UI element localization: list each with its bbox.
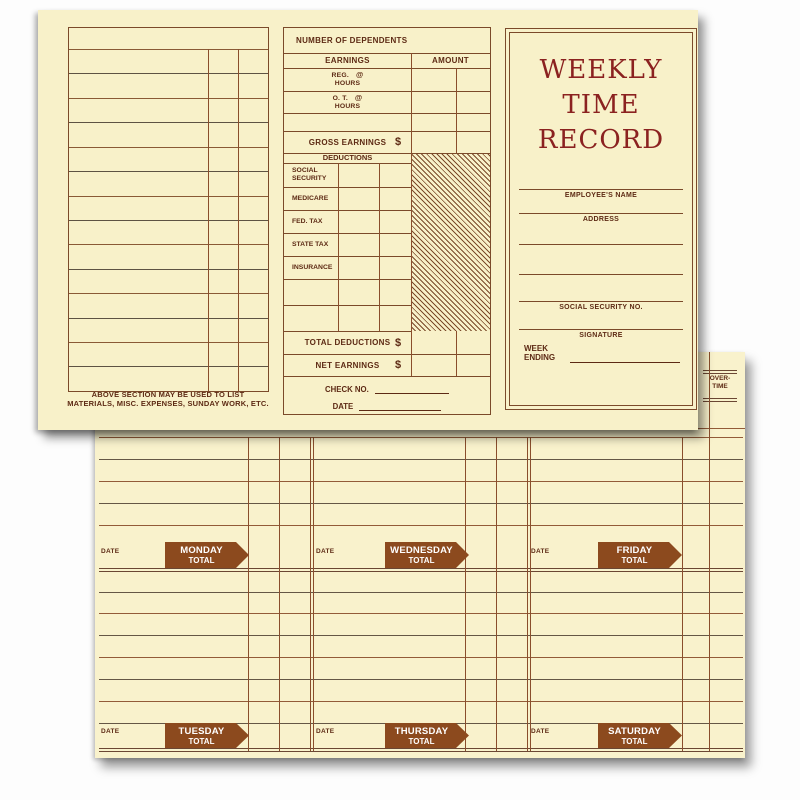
write-in-line	[519, 189, 683, 190]
day-name: SATURDAY	[608, 726, 661, 737]
total-label: TOTAL	[189, 556, 215, 565]
dollar-sign: $	[395, 359, 401, 371]
write-in-line	[519, 301, 683, 302]
day-name: WEDNESDAY	[390, 545, 453, 556]
blank-deduction-row	[284, 305, 411, 332]
friday-total-banner: FRIDAY TOTAL	[598, 542, 682, 568]
week-label: WEEK	[524, 344, 555, 353]
at-sign: @	[355, 93, 363, 102]
title-panel: WEEKLY TIME RECORD EMPLOYEE'S NAME ADDRE…	[505, 28, 697, 410]
hours-label: HOURS	[333, 103, 363, 111]
date-label: DATE	[316, 728, 334, 735]
saturday-total-banner: SATURDAY TOTAL	[598, 723, 682, 748]
overtime-hours-row: O. T.@ HOURS	[284, 91, 490, 114]
social-security-row: SOCIAL SECURITY	[284, 163, 411, 188]
state-tax-row: STATE TAX	[284, 233, 411, 257]
check-date-box: CHECK NO. DATE	[284, 376, 490, 414]
grid-line-double	[99, 748, 743, 749]
note-line1: ABOVE SECTION MAY BE USED TO LIST	[48, 390, 288, 399]
signature-label: SIGNATURE	[510, 332, 692, 339]
grid-line	[99, 679, 743, 680]
title-panel-inner-border: WEEKLY TIME RECORD EMPLOYEE'S NAME ADDRE…	[509, 32, 693, 406]
date-label: DATE	[316, 548, 334, 555]
check-no-blank-line	[375, 385, 449, 394]
write-in-line	[519, 213, 683, 214]
grid-line	[99, 701, 743, 702]
day-name: TUESDAY	[179, 726, 225, 737]
address-label: ADDRESS	[510, 216, 692, 223]
grid-line	[99, 592, 743, 593]
grid-line	[99, 503, 743, 504]
blank-earnings-row	[284, 113, 490, 132]
grid-line	[99, 657, 743, 658]
thursday-total-banner: THURSDAY TOTAL	[385, 723, 469, 748]
date-label: DATE	[531, 728, 549, 735]
regular-hours-row: REG.@ HOURS	[284, 68, 490, 92]
week-ending-blank-line	[570, 362, 680, 363]
grid-line-double	[99, 751, 743, 752]
net-earnings-row: NET EARNINGS $	[284, 354, 490, 377]
deduction-cell-line	[379, 163, 380, 331]
date-label: DATE	[531, 548, 549, 555]
medicare-row: MEDICARE	[284, 187, 411, 211]
grid-column-line-double	[313, 437, 314, 751]
week-ending-label: WEEK ENDING	[524, 344, 555, 362]
grid-line	[99, 481, 743, 482]
grid-line	[99, 459, 743, 460]
reg-label: REG.	[332, 72, 349, 79]
total-deductions-row: TOTAL DEDUCTIONS $	[284, 331, 490, 355]
title-line1: WEEKLY	[510, 53, 692, 88]
write-in-line	[519, 329, 683, 330]
date-blank-line	[359, 402, 441, 411]
day-name: MONDAY	[180, 545, 223, 556]
earnings-label: EARNINGS	[284, 56, 411, 65]
total-deductions-label: TOTAL DEDUCTIONS	[305, 338, 391, 347]
expense-table-header-row	[69, 28, 268, 49]
hatched-void-area	[411, 153, 490, 331]
grid-line	[99, 525, 743, 526]
deduction-label: FED. TAX	[284, 218, 344, 226]
overtime-column-label: OVER- TIME	[699, 375, 741, 390]
expense-table-note: ABOVE SECTION MAY BE USED TO LIST MATERI…	[48, 390, 288, 408]
ending-label: ENDING	[524, 353, 555, 362]
gross-earnings-label: GROSS EARNINGS	[309, 138, 387, 147]
hours-label: HOURS	[332, 80, 364, 88]
grid-line	[99, 437, 743, 438]
expense-table	[68, 27, 269, 392]
check-no-label: CHECK NO.	[325, 385, 369, 394]
write-in-line	[519, 274, 683, 275]
grid-column-line-double	[310, 437, 311, 751]
deduction-label: INSURANCE	[284, 264, 344, 272]
total-label: TOTAL	[409, 737, 435, 746]
dependents-label: NUMBER OF DEPENDENTS	[296, 36, 407, 45]
grid-line	[99, 635, 743, 636]
deduction-label: SOCIAL SECURITY	[284, 167, 344, 182]
grid-line	[99, 613, 743, 614]
deduction-label: STATE TAX	[284, 241, 344, 249]
payroll-panel: NUMBER OF DEPENDENTS EARNINGS AMOUNT REG…	[283, 27, 491, 415]
card-title: WEEKLY TIME RECORD	[510, 53, 692, 158]
note-line2: MATERIALS, MISC. EXPENSES, SUNDAY WORK, …	[48, 399, 288, 408]
grid-column-line	[496, 437, 497, 751]
overtime-label-line2: TIME	[699, 383, 741, 391]
overtime-label-line1: OVER-	[699, 375, 741, 383]
fed-tax-row: FED. TAX	[284, 210, 411, 234]
day-name: THURSDAY	[395, 726, 449, 737]
grid-column-line	[248, 437, 249, 751]
grid-line-double	[99, 571, 743, 572]
grid-line	[693, 428, 745, 429]
blank-deduction-row	[284, 279, 411, 306]
monday-total-banner: MONDAY TOTAL	[165, 542, 249, 568]
total-label: TOTAL	[622, 556, 648, 565]
day-name: FRIDAY	[617, 545, 653, 556]
employee-name-label: EMPLOYEE'S NAME	[510, 192, 692, 199]
title-line3: RECORD	[510, 123, 692, 158]
wednesday-total-banner: WEDNESDAY TOTAL	[385, 542, 469, 568]
amount-column-line	[411, 53, 412, 376]
ssn-label: SOCIAL SECURITY NO.	[510, 304, 692, 311]
expense-table-column-line	[208, 49, 209, 391]
product-photo: { "colors": { "paper": "#f8f1c9", "line_…	[0, 0, 800, 800]
date-label: DATE	[101, 548, 119, 555]
date-label: DATE	[101, 728, 119, 735]
insurance-row: INSURANCE	[284, 256, 411, 280]
grid-column-line	[279, 437, 280, 751]
earnings-header-row: EARNINGS AMOUNT	[284, 53, 490, 69]
payroll-stub-card: ABOVE SECTION MAY BE USED TO LIST MATERI…	[38, 10, 698, 430]
grid-column-line	[465, 437, 466, 751]
title-line2: TIME	[510, 88, 692, 123]
net-earnings-label: NET EARNINGS	[315, 361, 379, 370]
write-in-line	[519, 244, 683, 245]
ot-label: O. T.	[333, 95, 348, 102]
gross-earnings-row: GROSS EARNINGS $	[284, 131, 490, 154]
date-label: DATE	[333, 402, 354, 411]
cents-column-line	[456, 68, 457, 153]
total-label: TOTAL	[409, 556, 435, 565]
amount-label: AMOUNT	[411, 56, 490, 65]
total-label: TOTAL	[189, 737, 215, 746]
grid-column-line-double	[530, 437, 531, 751]
cents-column-line	[456, 331, 457, 376]
dollar-sign: $	[395, 136, 401, 148]
grid-column-line	[682, 437, 683, 751]
dependents-row: NUMBER OF DEPENDENTS	[284, 28, 490, 54]
expense-table-column-line	[238, 49, 239, 391]
deduction-cell-line	[338, 163, 339, 331]
grid-column-line-double	[527, 437, 528, 751]
tuesday-total-banner: TUESDAY TOTAL	[165, 723, 249, 748]
dollar-sign: $	[395, 337, 401, 349]
total-label: TOTAL	[622, 737, 648, 746]
at-sign: @	[356, 70, 364, 79]
grid-line-double	[99, 568, 743, 569]
overtime-column-line	[709, 352, 710, 751]
deduction-label: MEDICARE	[284, 195, 344, 203]
